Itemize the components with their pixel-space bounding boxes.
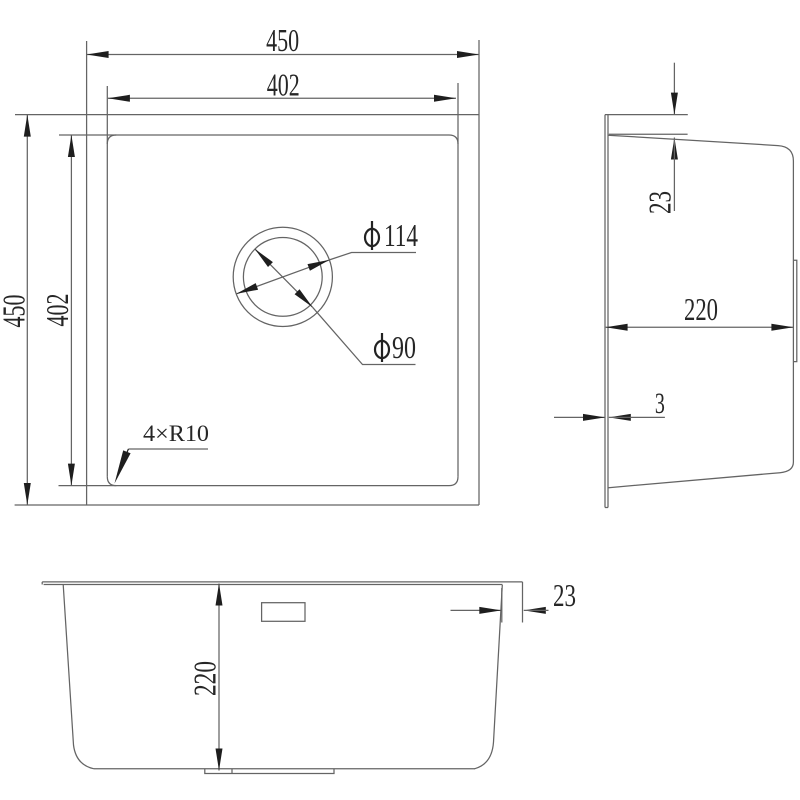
svg-text:4×R10: 4×R10 [143,421,209,446]
svg-text:220: 220 [684,291,718,327]
svg-text:3: 3 [655,387,665,420]
svg-text:114: 114 [384,217,418,253]
svg-text:450: 450 [266,22,299,58]
svg-text:90: 90 [392,329,416,365]
svg-text:402: 402 [39,294,75,327]
svg-text:23: 23 [553,577,576,613]
svg-text:220: 220 [187,661,223,696]
svg-text:450: 450 [0,295,31,328]
svg-text:23: 23 [642,191,678,214]
svg-text:402: 402 [267,67,300,103]
